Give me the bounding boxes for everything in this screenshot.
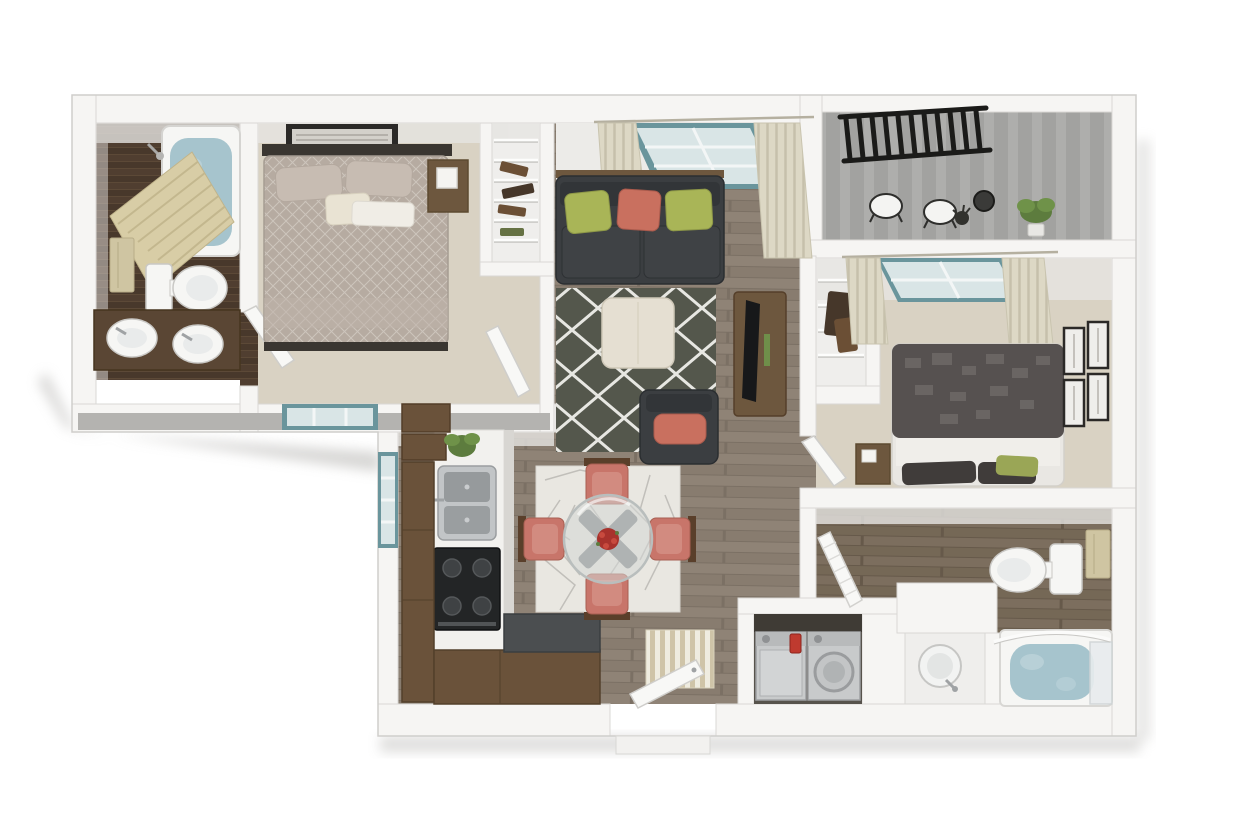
dining-chair-east bbox=[650, 516, 696, 562]
dining-area bbox=[518, 458, 696, 620]
towel-ring2 bbox=[1086, 530, 1110, 578]
wall-closet1-sill bbox=[480, 262, 554, 276]
nightstand1 bbox=[428, 160, 468, 212]
dryer-knob bbox=[814, 635, 822, 643]
b ed2-pillow-left bbox=[902, 461, 977, 486]
pillow-green-right bbox=[665, 189, 713, 231]
wall-bedroom2-south bbox=[800, 488, 1136, 508]
wall-closet2-south bbox=[816, 386, 880, 404]
pillow-coral bbox=[617, 189, 662, 232]
bedroom1-window bbox=[282, 404, 378, 430]
kitchen-window bbox=[378, 452, 398, 548]
bed1-pillow-right bbox=[345, 160, 413, 197]
dryer bbox=[808, 632, 860, 700]
accent-chair-cushion bbox=[654, 414, 706, 444]
door-handle-icon bbox=[692, 668, 697, 673]
ottoman bbox=[602, 298, 674, 368]
dining-chair-west bbox=[518, 516, 564, 562]
detergent-bottle bbox=[790, 634, 801, 653]
dining-table bbox=[564, 495, 652, 583]
pillow-green-left bbox=[564, 190, 612, 234]
floor-plan-stage bbox=[0, 0, 1240, 830]
sofa bbox=[556, 170, 724, 284]
wall-closet1-east bbox=[540, 123, 554, 432]
bistro-table bbox=[974, 191, 994, 211]
curtain2-left bbox=[846, 258, 888, 344]
washer-knob bbox=[762, 635, 770, 643]
laundry-closet bbox=[754, 614, 862, 704]
bed1 bbox=[262, 144, 452, 351]
wall-sink-nook bbox=[897, 583, 997, 633]
bed2 bbox=[892, 344, 1064, 486]
floor-plan-3d-rendering bbox=[0, 0, 1240, 830]
bathtub2 bbox=[994, 630, 1112, 706]
towel-rack1 bbox=[110, 238, 134, 292]
lamp1 bbox=[437, 168, 457, 188]
sofa-seat-right bbox=[644, 226, 720, 278]
threshold-step bbox=[616, 736, 710, 754]
bed2-pillow-green bbox=[996, 455, 1039, 477]
range bbox=[434, 548, 500, 630]
bed1-throw-white bbox=[352, 201, 415, 227]
tv-console bbox=[734, 292, 786, 416]
bed1-headboard bbox=[262, 144, 452, 156]
wall-laundry-west bbox=[738, 614, 754, 704]
bed1-blanket-fold bbox=[264, 298, 448, 328]
kitchen-sink bbox=[428, 466, 497, 540]
wall-tub-divider bbox=[985, 633, 1000, 704]
tub-glass-panel bbox=[1090, 642, 1112, 704]
media-accent bbox=[764, 334, 770, 366]
accent-chair bbox=[640, 390, 718, 464]
wall-living-east-upper bbox=[800, 256, 816, 436]
washer bbox=[756, 632, 806, 700]
bathtub2-water bbox=[1010, 644, 1094, 700]
upper-cabinets bbox=[402, 404, 450, 460]
wall-laundry-north bbox=[738, 598, 920, 614]
wall-closet1-west bbox=[480, 123, 492, 262]
bed1-footboard bbox=[264, 342, 448, 351]
wall-bottom-right bbox=[716, 704, 1136, 736]
vanity1 bbox=[94, 310, 240, 370]
wall-left bbox=[72, 95, 96, 432]
nightstand2 bbox=[856, 444, 890, 484]
wall-bath1-bed1-upper bbox=[240, 123, 258, 312]
wall-right bbox=[1112, 95, 1136, 736]
wall-bottom-left bbox=[378, 704, 610, 736]
toilet1 bbox=[146, 264, 227, 312]
